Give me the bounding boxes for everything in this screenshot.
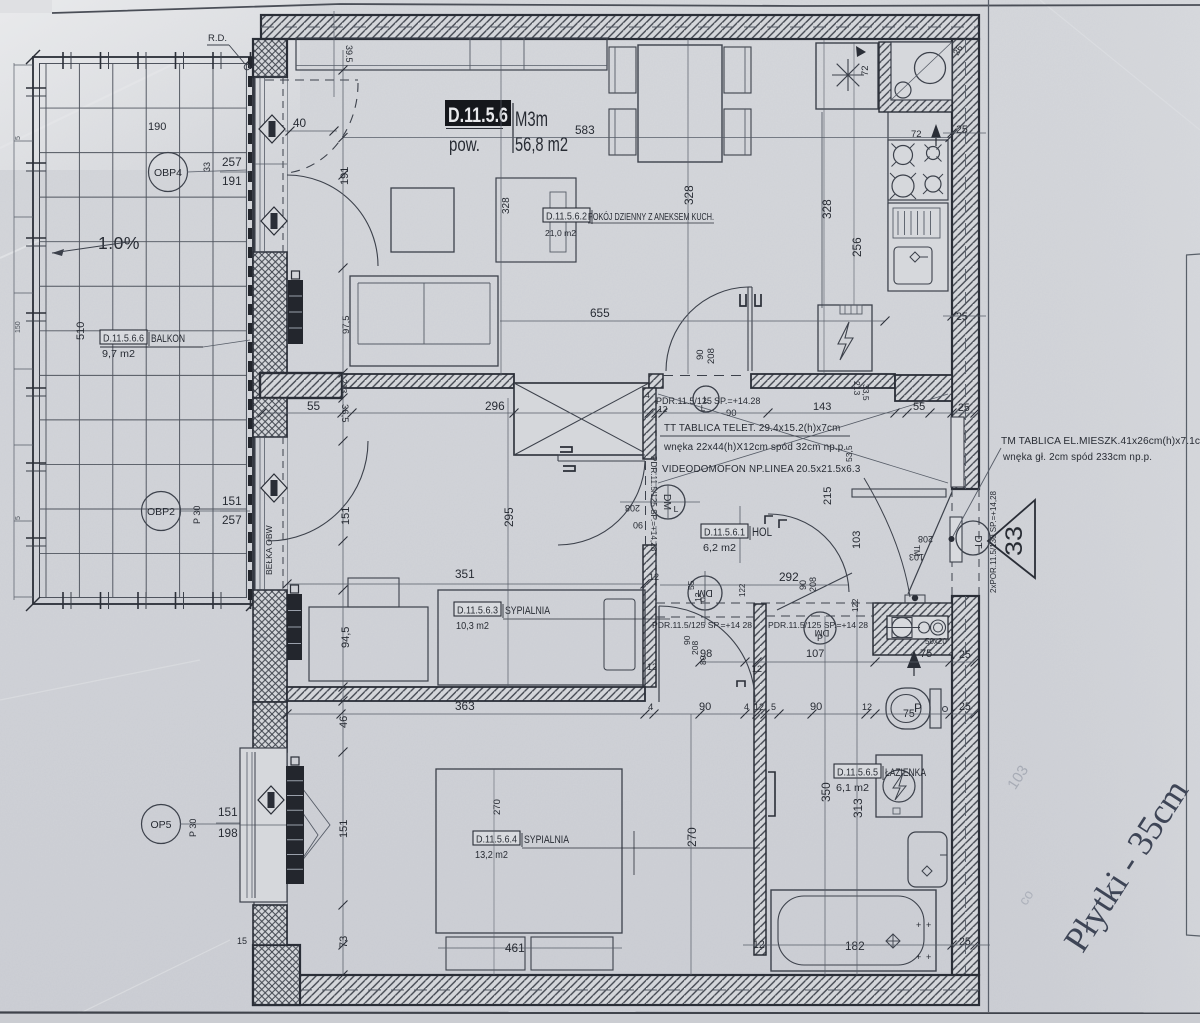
svg-text:296: 296 — [485, 399, 505, 413]
svg-text:122: 122 — [738, 583, 747, 597]
svg-text:583: 583 — [575, 123, 595, 137]
svg-text:143: 143 — [813, 401, 831, 413]
svg-text:190: 190 — [148, 121, 166, 133]
svg-text:182: 182 — [845, 939, 865, 953]
svg-text:TM: TM — [912, 545, 921, 557]
svg-text:TM TABLICA EL.MIESZK.41x26cm(h: TM TABLICA EL.MIESZK.41x26cm(h)x7.1cm — [1001, 436, 1200, 447]
svg-text:5: 5 — [771, 702, 776, 712]
svg-text:90: 90 — [810, 701, 822, 713]
svg-text:D.11.5.6.2: D.11.5.6.2 — [546, 211, 587, 223]
svg-text:5: 5 — [15, 516, 22, 520]
svg-text:151: 151 — [218, 805, 238, 819]
svg-text:15: 15 — [237, 936, 247, 946]
svg-text:25: 25 — [959, 649, 971, 661]
svg-text:DM: DM — [661, 494, 673, 510]
svg-text:P 30: P 30 — [188, 819, 198, 837]
svg-text:292: 292 — [779, 570, 799, 584]
svg-text:363: 363 — [455, 699, 475, 713]
svg-text:55: 55 — [307, 399, 321, 413]
svg-text:2xPOR.11.5/130 SP.=+14,28: 2xPOR.11.5/130 SP.=+14,28 — [989, 490, 998, 593]
svg-text:97,5: 97,5 — [341, 316, 352, 335]
svg-text:90: 90 — [798, 580, 808, 590]
svg-text:33,5: 33,5 — [861, 384, 871, 401]
svg-text:12: 12 — [693, 592, 703, 602]
svg-text:SYPIALNIA: SYPIALNIA — [505, 605, 550, 617]
svg-text:33: 33 — [202, 162, 212, 172]
svg-text:12: 12 — [649, 572, 659, 582]
svg-text:12: 12 — [754, 702, 764, 712]
svg-text:+: + — [916, 952, 921, 962]
svg-text:HOL: HOL — [752, 525, 772, 539]
svg-text:+: + — [916, 920, 921, 930]
svg-text:25: 25 — [956, 311, 968, 323]
svg-text:D.11.5.6.1: D.11.5.6.1 — [704, 527, 745, 539]
svg-text:90: 90 — [633, 520, 643, 530]
svg-text:P: P — [914, 701, 922, 715]
svg-text:72: 72 — [860, 65, 871, 76]
svg-text:208: 208 — [918, 534, 933, 544]
svg-text:VIDEODOMOFON NP.LINEA 20.5x21.: VIDEODOMOFON NP.LINEA 20.5x21.5x6.3 — [662, 464, 861, 475]
svg-text:12: 12 — [658, 404, 668, 414]
svg-text:POKÓJ DZIENNY Z ANEKSEM KUCH.: POKÓJ DZIENNY Z ANEKSEM KUCH. — [588, 210, 714, 223]
svg-text:12: 12 — [647, 662, 657, 672]
svg-text:4: 4 — [645, 390, 650, 400]
svg-text:D.11.5.6.5: D.11.5.6.5 — [837, 767, 878, 779]
svg-text:D.11.5.6.4: D.11.5.6.4 — [476, 834, 517, 846]
svg-text:150: 150 — [15, 321, 22, 333]
svg-text:SP.=+14.28: SP.=+14.28 — [714, 396, 760, 406]
svg-text:198: 198 — [218, 826, 238, 840]
svg-text:P 30: P 30 — [192, 506, 202, 524]
svg-text:6,1 m2: 6,1 m2 — [836, 782, 869, 794]
svg-text:wnęka 22x44(h)X12cm spód 32cm: wnęka 22x44(h)X12cm spód 32cm np.p. — [663, 442, 846, 453]
svg-text:4: 4 — [744, 702, 749, 712]
svg-text:295: 295 — [502, 507, 516, 527]
svg-text:256: 256 — [850, 237, 864, 257]
svg-text:328: 328 — [820, 199, 834, 219]
svg-text:215: 215 — [822, 487, 834, 505]
svg-text:90: 90 — [699, 701, 711, 713]
svg-text:33: 33 — [1001, 526, 1028, 556]
svg-text:257: 257 — [222, 155, 242, 169]
svg-text:90: 90 — [726, 408, 737, 419]
svg-text:90: 90 — [695, 349, 706, 360]
svg-text:+: + — [926, 952, 931, 962]
svg-text:103: 103 — [851, 531, 863, 549]
svg-text:L: L — [701, 404, 706, 413]
svg-text:151: 151 — [340, 507, 352, 525]
svg-text:25: 25 — [959, 701, 971, 713]
svg-text:55: 55 — [913, 401, 925, 413]
svg-text:313: 313 — [851, 798, 865, 818]
svg-text:151: 151 — [338, 820, 350, 838]
svg-text:BALKON: BALKON — [151, 333, 185, 345]
svg-text:OBP2: OBP2 — [147, 506, 175, 518]
svg-text:53,5: 53,5 — [844, 445, 854, 462]
svg-text:12: 12 — [862, 702, 872, 712]
svg-text:25: 25 — [959, 936, 971, 948]
svg-text:46: 46 — [338, 716, 350, 728]
svg-text:80: 80 — [698, 655, 708, 665]
svg-text:351: 351 — [455, 567, 475, 581]
svg-text:94,5: 94,5 — [340, 627, 352, 648]
svg-text:D.11.5.6: D.11.5.6 — [448, 104, 508, 127]
svg-text:461: 461 — [505, 941, 525, 955]
svg-text:270: 270 — [685, 827, 699, 847]
svg-text:D.11.5.6.6: D.11.5.6.6 — [103, 333, 144, 345]
svg-text:PDR.11.5/125 SP.=+14 28: PDR.11.5/125 SP.=+14 28 — [652, 620, 752, 630]
svg-text:328: 328 — [501, 197, 512, 214]
svg-text:39.5: 39.5 — [344, 45, 354, 63]
svg-text:pow.: pow. — [449, 135, 480, 156]
svg-text:107: 107 — [806, 648, 824, 660]
svg-text:BEŁKA OBW: BEŁKA OBW — [264, 525, 274, 575]
svg-text:9,7 m2: 9,7 m2 — [102, 348, 135, 360]
svg-text:4: 4 — [648, 702, 653, 713]
svg-text:122: 122 — [851, 598, 860, 612]
svg-text:350: 350 — [819, 782, 833, 802]
svg-text:208: 208 — [808, 577, 818, 592]
svg-text:13,2 m2: 13,2 m2 — [475, 849, 508, 861]
svg-text:12: 12 — [752, 664, 762, 674]
svg-text:40: 40 — [293, 116, 307, 130]
svg-text:OBP4: OBP4 — [154, 167, 182, 179]
svg-text:SYPIALNIA: SYPIALNIA — [524, 834, 569, 846]
svg-text:510: 510 — [75, 322, 87, 340]
svg-text:5: 5 — [15, 136, 22, 140]
svg-text:D.11.5.6.3: D.11.5.6.3 — [457, 605, 498, 617]
svg-text:257: 257 — [222, 513, 242, 527]
svg-text:25: 25 — [956, 124, 968, 136]
svg-text:213: 213 — [852, 381, 862, 395]
svg-text:328: 328 — [682, 185, 696, 205]
svg-text:R.D.: R.D. — [208, 33, 227, 44]
svg-text:191: 191 — [339, 167, 351, 185]
svg-text:213: 213 — [339, 379, 349, 393]
svg-text:6,2 m2: 6,2 m2 — [703, 542, 736, 554]
svg-text:OP5: OP5 — [150, 819, 171, 831]
svg-text:L: L — [674, 504, 679, 514]
svg-text:10,3 m2: 10,3 m2 — [456, 620, 489, 632]
svg-text:DT: DT — [972, 535, 983, 548]
svg-text:TT TABLICA TELET. 29.4x15.2(h): TT TABLICA TELET. 29.4x15.2(h)x7cm — [664, 423, 841, 434]
svg-text:P: P — [817, 633, 823, 643]
svg-text:55: 55 — [686, 580, 696, 590]
svg-text:208: 208 — [625, 503, 640, 513]
svg-text:wnęka gł. 2cm spód 233cm np.p.: wnęka gł. 2cm spód 233cm np.p. — [1002, 452, 1152, 463]
svg-text:50x20: 50x20 — [925, 637, 947, 646]
svg-text:73: 73 — [338, 936, 350, 948]
svg-text:+: + — [926, 920, 931, 930]
svg-text:655: 655 — [590, 306, 610, 320]
svg-text:208: 208 — [690, 641, 700, 655]
svg-text:ŁAZIENKA: ŁAZIENKA — [885, 767, 927, 779]
svg-text:72: 72 — [911, 129, 922, 140]
svg-text:M3m: M3m — [515, 108, 548, 131]
svg-text:PDR.11.5/125 SP.=+14 28: PDR.11.5/125 SP.=+14 28 — [768, 620, 868, 630]
svg-text:270: 270 — [492, 799, 503, 815]
svg-text:21,0 m2: 21,0 m2 — [545, 228, 576, 238]
svg-text:208: 208 — [706, 348, 717, 364]
svg-text:PDR.11.5/125 SP.=+14,28: PDR.11.5/125 SP.=+14,28 — [649, 456, 658, 552]
svg-text:75: 75 — [920, 648, 932, 660]
svg-text:151: 151 — [222, 494, 242, 508]
svg-text:25: 25 — [958, 402, 970, 414]
svg-text:191: 191 — [222, 174, 242, 188]
